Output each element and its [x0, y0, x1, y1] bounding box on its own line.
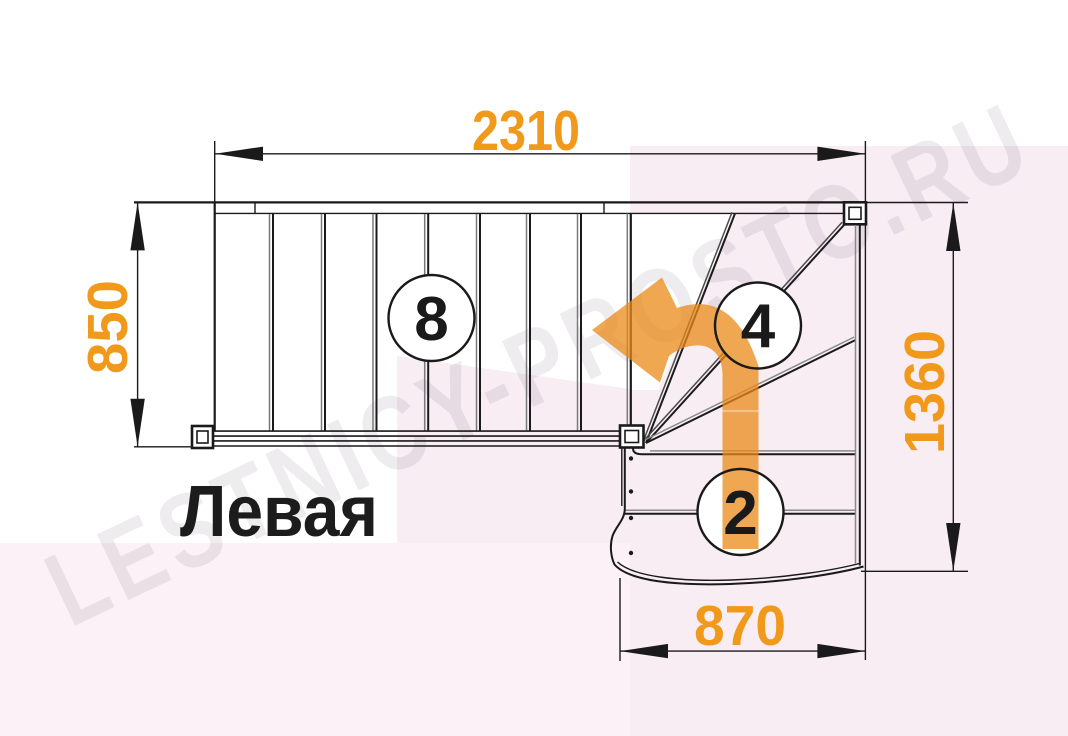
- svg-text:4: 4: [741, 292, 776, 361]
- svg-text:1360: 1360: [893, 330, 957, 454]
- svg-text:2: 2: [723, 479, 757, 548]
- svg-text:870: 870: [694, 594, 786, 658]
- svg-text:850: 850: [76, 280, 140, 374]
- svg-text:Левая: Левая: [180, 472, 378, 552]
- svg-text:2310: 2310: [472, 99, 580, 163]
- svg-text:8: 8: [414, 285, 448, 354]
